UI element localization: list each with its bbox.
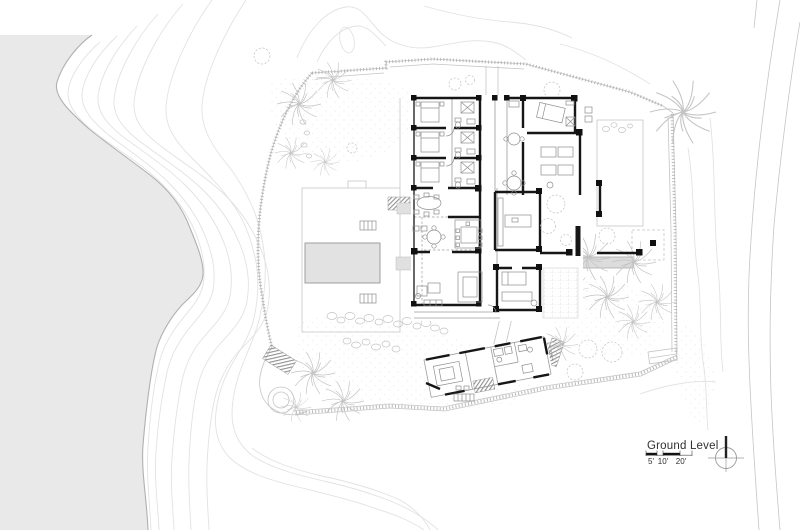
scale-label-5: 5' [648, 457, 654, 466]
plan-canvas: Ground Level 5' 10' 20' [0, 0, 800, 530]
water-area [0, 35, 203, 530]
scale-label-10: 10' [658, 457, 669, 466]
access-road [748, 0, 800, 530]
walled-garden-northeast [597, 120, 643, 226]
terrace-ramp [397, 203, 413, 214]
palm-tree-icon [650, 81, 716, 144]
pool [305, 243, 380, 283]
utility-pad [650, 240, 656, 246]
scale-bar: 5' 10' 20' [646, 451, 692, 467]
east-boundary-wall [668, 113, 677, 355]
plan-title: Ground Level [647, 440, 718, 452]
title-block: Ground Level 5' 10' 20' [646, 436, 744, 472]
south-terrace-grid [543, 268, 578, 318]
site-plan-drawing: Ground Level 5' 10' 20' [0, 0, 800, 530]
scale-label-20: 20' [676, 457, 687, 466]
